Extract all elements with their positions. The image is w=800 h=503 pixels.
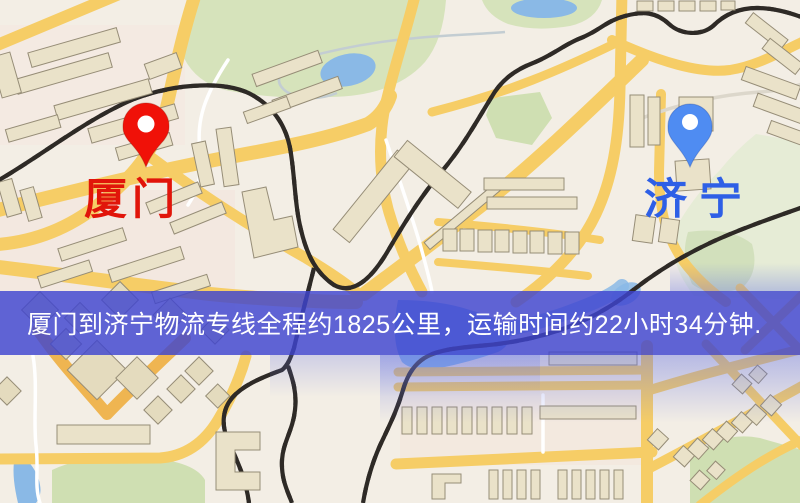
map-canvas[interactable] bbox=[0, 0, 800, 503]
logistics-route-map: 厦门 济宁 厦门到济宁物流专线全程约1825公里，运输时间约22小时34分钟. bbox=[0, 0, 800, 503]
route-summary-banner: 厦门到济宁物流专线全程约1825公里，运输时间约22小时34分钟. bbox=[0, 291, 800, 355]
destination-city-label: 济宁 bbox=[644, 179, 754, 222]
route-summary-text: 厦门到济宁物流专线全程约1825公里，运输时间约22小时34分钟. bbox=[0, 305, 762, 341]
origin-city-label: 厦门 bbox=[84, 179, 180, 222]
